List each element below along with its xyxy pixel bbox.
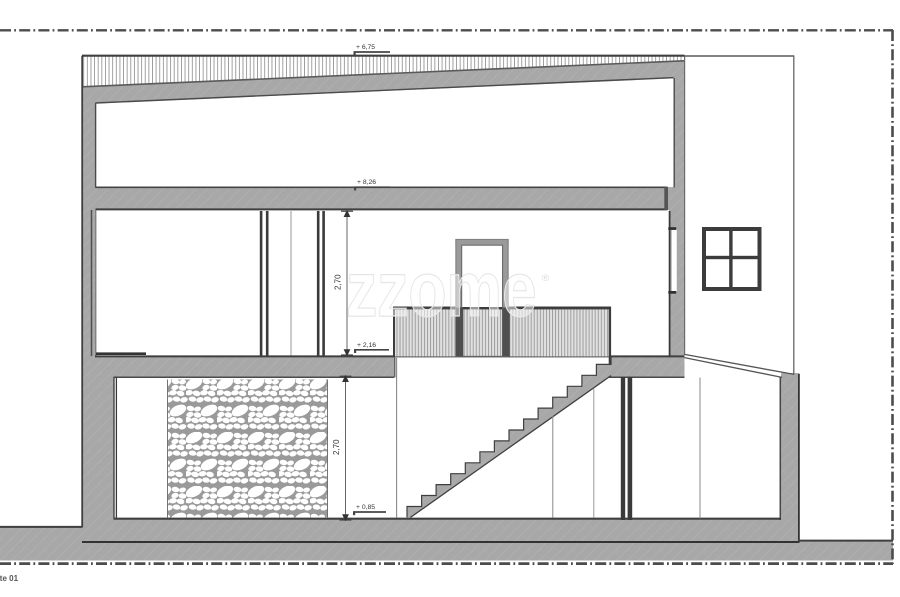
svg-text:+ 0,85: + 0,85 <box>356 504 375 511</box>
svg-text:2,70: 2,70 <box>334 274 343 290</box>
svg-text:®: ® <box>542 273 549 284</box>
svg-text:Corte 01: Corte 01 <box>0 574 19 583</box>
svg-text:zzome: zzome <box>346 245 537 332</box>
svg-text:+ 2,16: + 2,16 <box>357 342 376 349</box>
svg-text:2,70: 2,70 <box>332 439 341 455</box>
svg-text:+ 8,26: + 8,26 <box>357 179 376 186</box>
svg-text:+ 6,75: + 6,75 <box>356 44 375 51</box>
